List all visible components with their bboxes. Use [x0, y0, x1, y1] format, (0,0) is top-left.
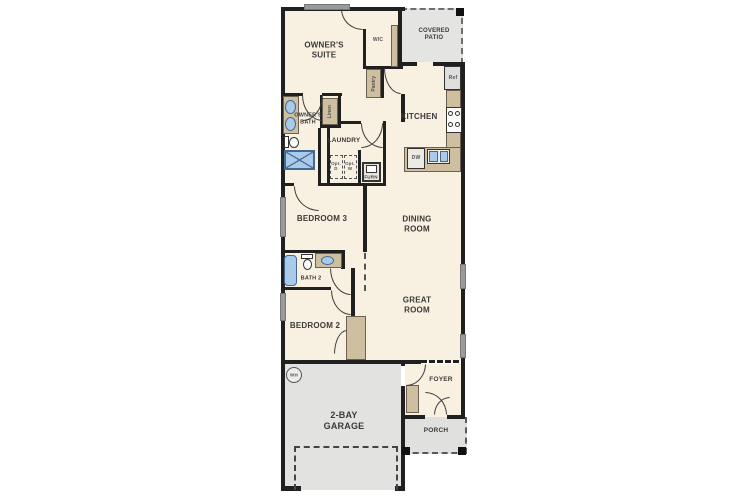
linen-label: Linen — [327, 105, 333, 118]
burner — [455, 111, 460, 116]
optional-dryer-label: Opt.D — [331, 162, 341, 172]
bedroom2-label: BEDROOM 2 — [290, 321, 340, 331]
wic-label: WIC — [373, 37, 383, 43]
foyer-label: FOYER — [429, 376, 452, 384]
dining-great-opening — [364, 253, 366, 291]
porch-post-right — [458, 447, 466, 455]
owners-suite-label: OWNER'SSUITE — [304, 40, 343, 59]
water-heater-label: WH — [290, 372, 298, 377]
covered-patio-label: COVEREDPATIO — [418, 28, 449, 42]
wall-bath2-south — [281, 287, 331, 290]
wall-garage-right-b — [401, 386, 405, 490]
wall-laundry-right — [358, 150, 361, 183]
bedroom2-closet — [346, 316, 366, 360]
wall-house-south — [281, 360, 421, 364]
wall-wic-left — [363, 29, 366, 69]
dishwasher-label: DW — [412, 155, 421, 161]
patio-post — [456, 8, 464, 16]
wall-bedroom3-north-a — [281, 183, 294, 186]
window-great-right — [460, 334, 466, 358]
dining-room-label: DININGROOM — [402, 214, 431, 233]
refrigerator-label: Ref — [449, 75, 458, 81]
wall-foyer-south-b — [447, 415, 465, 419]
porch-post-left — [402, 447, 410, 455]
garage-door-apron — [294, 446, 398, 490]
furnace-label: FURN — [364, 174, 377, 179]
wall-bedroom3-dining — [363, 186, 367, 252]
bath2-label: BATH 2 — [301, 276, 322, 283]
wall-furn-right — [383, 121, 386, 183]
owners-bath-label: OWNER'SBATH — [294, 112, 321, 125]
floor-plan: Pantry Linen Ref DW Opt.D Opt.W FURN WH — [0, 0, 750, 500]
great-room-foyer-opening — [421, 360, 459, 363]
toilet-1-bowl — [289, 137, 299, 148]
wall-wic-patio — [398, 7, 402, 66]
patio-door-opening — [417, 62, 433, 66]
bedroom3-label: BEDROOM 3 — [297, 214, 347, 224]
laundry-label: LAUNDRY — [328, 137, 361, 145]
shower — [284, 150, 315, 170]
window-dining-right — [460, 264, 466, 289]
kitchen-sink-basin-left — [429, 151, 438, 162]
wall-left — [281, 7, 285, 490]
pantry-label: Pantry — [371, 76, 377, 92]
wic-shelf — [391, 25, 398, 67]
furnace-inner — [366, 165, 377, 173]
toilet-2-bowl — [303, 259, 312, 270]
bath2-sink — [321, 256, 334, 265]
burner — [455, 122, 460, 127]
burner — [448, 111, 453, 116]
wall-garage-right-a — [401, 362, 405, 366]
wall-foyer-south-a — [403, 415, 425, 419]
foyer-coat-closet — [406, 385, 419, 413]
wall-bedroom3-north-b — [318, 183, 386, 186]
porch-label: PORCH — [424, 427, 448, 435]
kitchen-sink-basin-right — [440, 151, 448, 162]
wall-bedroom2-great — [351, 268, 355, 316]
pantry-closet: Pantry — [366, 69, 381, 98]
window-bedroom2-left — [280, 293, 286, 321]
bathtub — [284, 255, 297, 286]
wall-bath-right — [318, 128, 321, 183]
wall-linen-bottom — [320, 125, 341, 128]
window-bedroom3-left — [280, 197, 286, 237]
kitchen-label: KITCHEN — [401, 112, 438, 122]
burner — [448, 122, 453, 127]
linen-closet: Linen — [322, 98, 338, 125]
garage-label: 2-BAYGARAGE — [324, 410, 365, 432]
great-room-label: GREATROOM — [403, 295, 431, 314]
optional-washer-label: Opt.W — [345, 162, 355, 172]
